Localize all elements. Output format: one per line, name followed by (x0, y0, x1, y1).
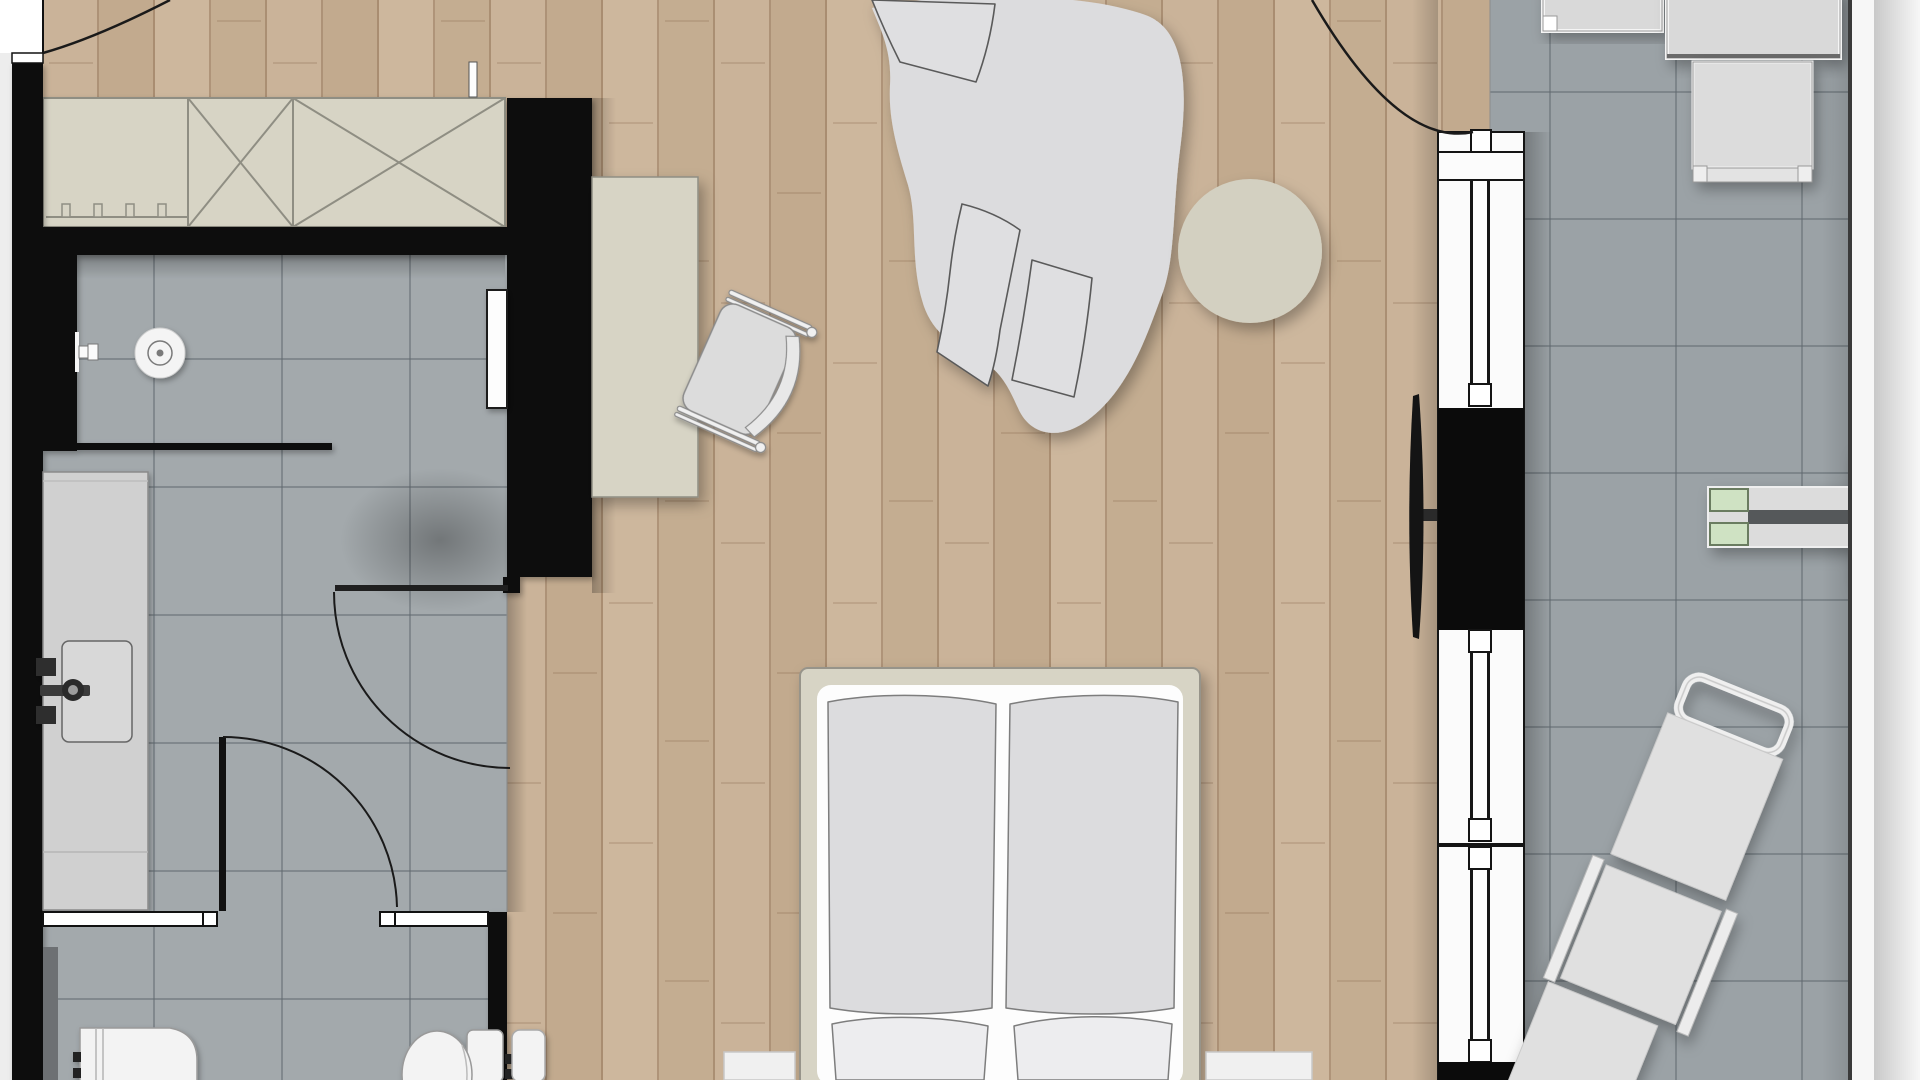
plant-pot (1710, 489, 1748, 511)
window-mullion (1469, 819, 1491, 841)
railing-top (1852, 0, 1874, 1080)
duvet-left (828, 695, 996, 1014)
glazing-line (1487, 652, 1490, 819)
window-frame-head-stub (1471, 130, 1491, 154)
exterior-entry-corner (0, 0, 43, 53)
shower-valve (79, 346, 88, 358)
glazing-line (1470, 652, 1473, 819)
bathroom-door-closed-line (335, 585, 508, 591)
laundry-bin (512, 1030, 545, 1080)
window-mullion (1469, 630, 1491, 652)
vanity (36, 472, 148, 910)
duvet-right (1006, 695, 1178, 1014)
floor-transition-line (1489, 0, 1491, 132)
corridor-edge-line (506, 577, 508, 912)
wc-threshold-left (43, 912, 203, 926)
balcony-door-opening-floor (1490, 0, 1524, 132)
bathroom-door (487, 290, 507, 408)
towel-radiator (43, 947, 58, 1080)
exterior-left (0, 0, 12, 1080)
nightstand-left (724, 1052, 795, 1080)
desk (592, 177, 698, 497)
window-mullion (1469, 847, 1491, 869)
wc-door (219, 737, 226, 911)
planter-slot (1748, 510, 1853, 524)
wc-jamb-right (380, 912, 395, 926)
plant-pot (1710, 523, 1748, 545)
railing (1848, 0, 1920, 1080)
outdoor-table (1667, 0, 1840, 58)
chair-backrest-band (1693, 168, 1812, 182)
side-table-pouf (1178, 179, 1322, 323)
entry-threshold (12, 53, 43, 63)
window-wall (1438, 130, 1524, 1080)
outdoor-chair (1693, 62, 1812, 182)
glazing-line (1487, 180, 1490, 384)
window-mullion (1469, 1040, 1491, 1062)
exterior-right (1874, 0, 1920, 1080)
flush-plate (73, 1052, 81, 1062)
outdoor-side-table (1543, 0, 1662, 31)
shadow-corridor-edge (507, 577, 527, 912)
glazing-line (1470, 180, 1473, 384)
wall-shower-thick (43, 255, 77, 451)
shadow-balcony-wall (1524, 132, 1552, 1080)
pillow-left (832, 1017, 988, 1080)
wc-jamb-left (203, 912, 217, 926)
glazing-line (1470, 869, 1473, 1040)
wc-threshold-right (395, 912, 488, 926)
shower-rail (75, 332, 79, 372)
pillow-right (1014, 1017, 1172, 1080)
floor-plan-canvas (0, 0, 1920, 1080)
window-mullion (1469, 384, 1491, 406)
wall-left-outer (12, 63, 43, 1080)
double-bed (800, 668, 1200, 1080)
wall-column (507, 98, 592, 577)
window-frame-head (1438, 152, 1524, 180)
shadow-under-wall (45, 255, 505, 279)
wardrobe (43, 98, 505, 227)
wall-tv-section (1438, 408, 1524, 630)
flush-plate (73, 1068, 81, 1078)
shower-partition (75, 443, 332, 450)
floor-plan (0, 0, 1920, 1080)
bidet (73, 1028, 197, 1080)
nightstand-right (1206, 1052, 1312, 1080)
railing-edge (1848, 0, 1852, 1080)
door-stop (469, 62, 477, 97)
glazing-line (1487, 869, 1490, 1040)
shower-head-center (157, 350, 164, 357)
shower-control (88, 344, 98, 360)
